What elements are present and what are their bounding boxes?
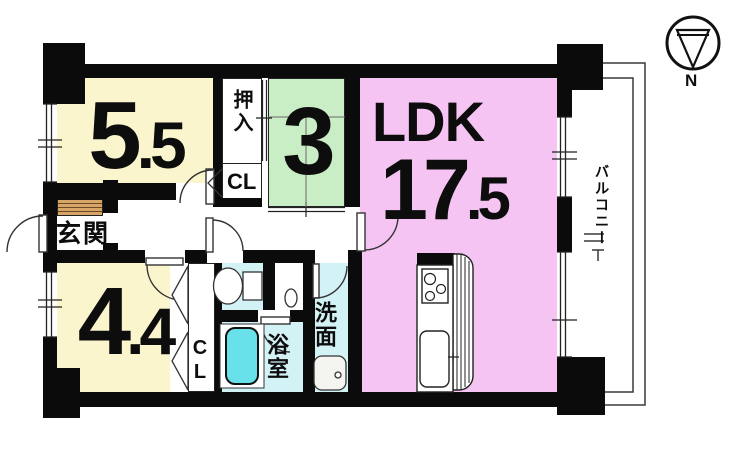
bathtub bbox=[220, 324, 264, 388]
label-closet-lower: CL bbox=[190, 337, 210, 385]
window-balcony-upper bbox=[552, 117, 577, 197]
label-ldk-size: 17.5 bbox=[368, 150, 518, 232]
label-washroom: 洗面 bbox=[313, 301, 335, 349]
label-bedroom2-size: 3 bbox=[268, 96, 345, 187]
label-bedroom1-size: 5.5 bbox=[60, 90, 210, 181]
washer-faucet-symbol bbox=[285, 289, 297, 307]
window-left-upper bbox=[38, 104, 62, 182]
floorplan: 5.5 3 4.4 LDK 17.5 押入 CL 玄関 CL 浴室 洗面 バルコ… bbox=[0, 0, 740, 458]
window-balcony-lower bbox=[552, 252, 577, 357]
washroom-sink bbox=[314, 356, 346, 390]
door-washroom bbox=[313, 264, 347, 298]
label-compass-north: N bbox=[685, 72, 697, 89]
label-balcony: バルコニー bbox=[593, 164, 608, 247]
label-bedroom3-size: 4.4 bbox=[52, 276, 197, 367]
kitchen-unit bbox=[417, 254, 473, 392]
compass-icon bbox=[667, 17, 719, 69]
label-oshiire: 押入 bbox=[231, 89, 251, 135]
door-toilet bbox=[206, 218, 243, 252]
label-genkan: 玄関 bbox=[56, 222, 110, 247]
label-bathroom: 浴室 bbox=[265, 333, 287, 381]
door-entrance bbox=[7, 215, 47, 252]
toilet-fixture bbox=[214, 268, 263, 304]
label-closet-upper: CL bbox=[227, 171, 256, 193]
